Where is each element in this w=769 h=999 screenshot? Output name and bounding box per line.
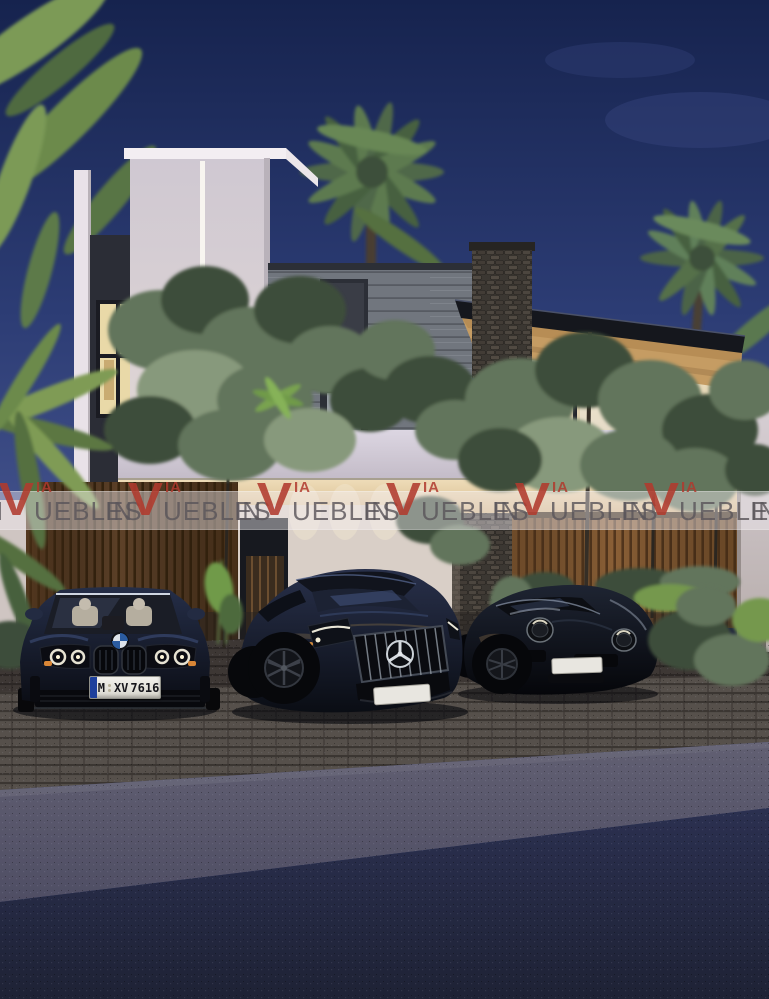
plate-letters: XV: [114, 682, 128, 694]
plate-seal-dots: [108, 684, 111, 692]
architectural-render-photo: INVIAUEBLES INVIAUEBLES INVIAUEBLES INVI…: [0, 0, 769, 999]
license-plate-text: M XV 7616: [97, 682, 160, 694]
license-plate-eu-band: [90, 677, 97, 698]
plate-city: M: [98, 682, 105, 694]
plate-numbers: 7616: [130, 682, 159, 694]
scene-canvas: [0, 0, 769, 999]
license-plate: M XV 7616: [89, 676, 161, 699]
